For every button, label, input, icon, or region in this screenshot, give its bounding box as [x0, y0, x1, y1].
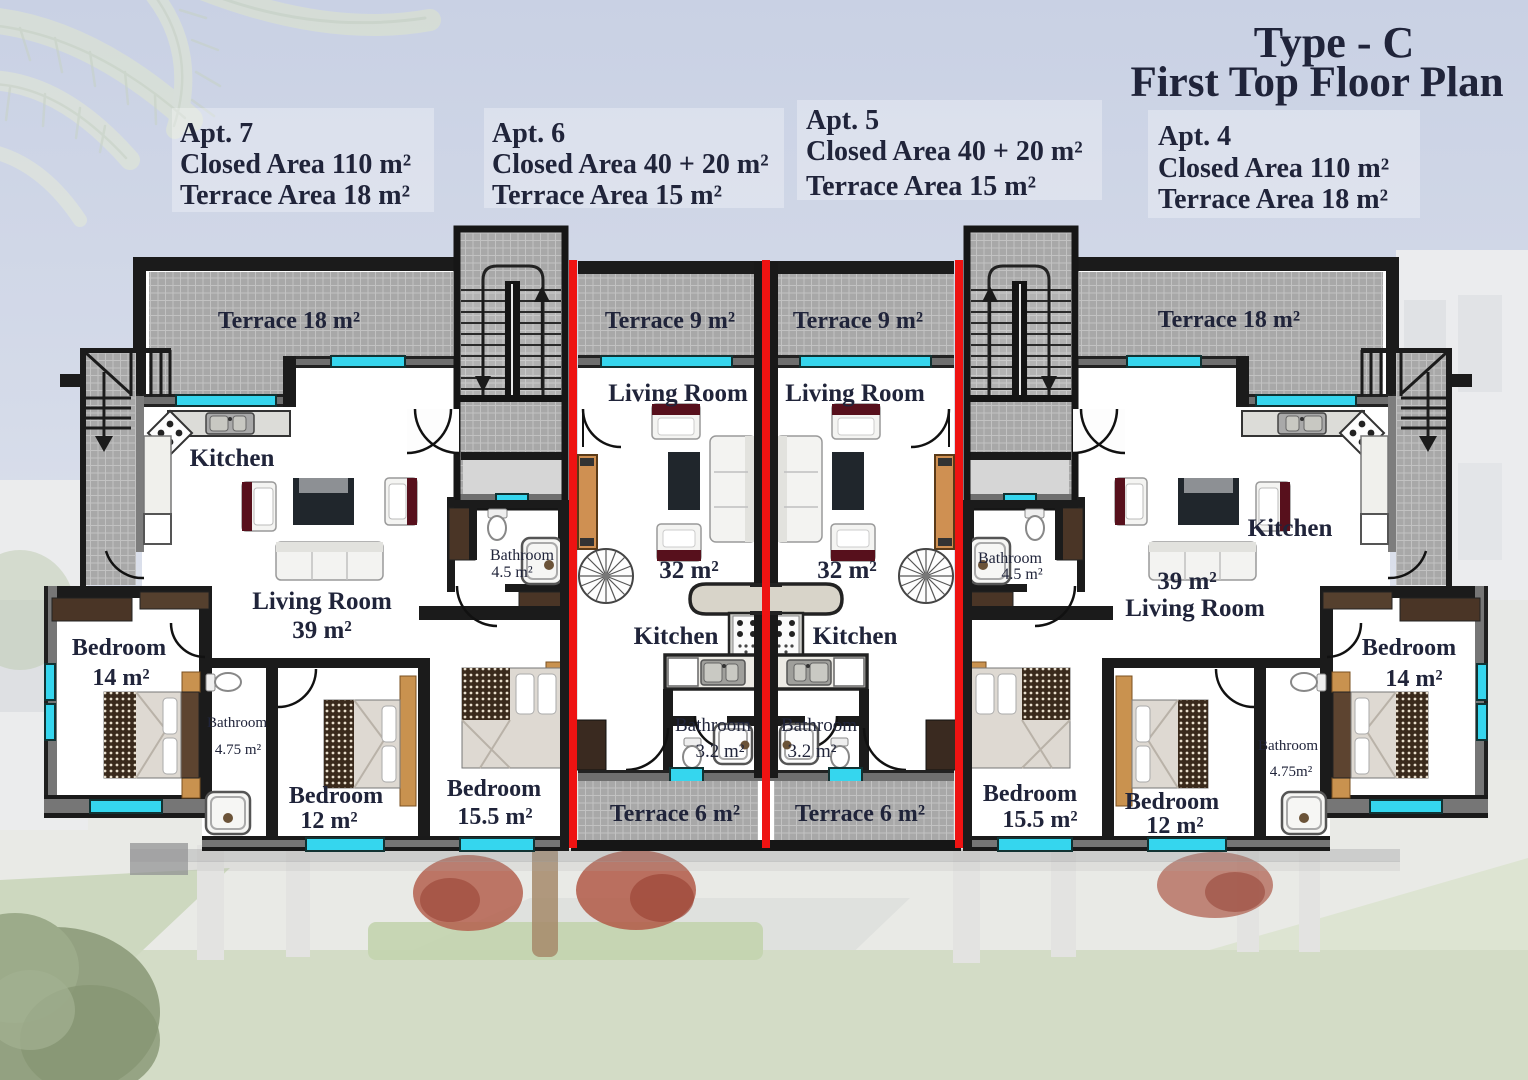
svg-text:Bathroom: Bathroom — [675, 715, 751, 736]
svg-text:Kitchen: Kitchen — [190, 445, 275, 472]
svg-text:Living Room: Living Room — [1125, 595, 1265, 622]
svg-text:Terrace Area 15 m²: Terrace Area 15 m² — [492, 180, 722, 211]
svg-text:12 m²: 12 m² — [300, 808, 357, 834]
svg-text:Kitchen: Kitchen — [1248, 515, 1333, 542]
svg-text:Bathroom: Bathroom — [207, 715, 267, 731]
svg-text:14 m²: 14 m² — [1385, 666, 1442, 692]
svg-text:14 m²: 14 m² — [92, 665, 149, 691]
svg-text:Terrace 6 m²: Terrace 6 m² — [610, 801, 740, 827]
svg-text:Bedroom: Bedroom — [1362, 635, 1456, 661]
svg-text:Terrace 9 m²: Terrace 9 m² — [605, 308, 735, 334]
svg-text:Closed Area 110 m²: Closed Area 110 m² — [1158, 153, 1389, 184]
svg-text:39 m²: 39 m² — [292, 617, 352, 644]
svg-text:15.5 m²: 15.5 m² — [1002, 807, 1077, 833]
svg-text:Terrace Area 15 m²: Terrace Area 15 m² — [806, 171, 1036, 202]
svg-text:4.5 m²: 4.5 m² — [491, 564, 532, 581]
svg-text:Terrace 6 m²: Terrace 6 m² — [795, 801, 925, 827]
svg-text:Bedroom: Bedroom — [983, 781, 1077, 807]
svg-text:Terrace Area 18 m²: Terrace Area 18 m² — [180, 180, 410, 211]
svg-text:Bathroom: Bathroom — [490, 547, 555, 564]
svg-text:Kitchen: Kitchen — [634, 623, 719, 650]
svg-text:4.5 m²: 4.5 m² — [1001, 566, 1042, 583]
svg-text:4.75m²: 4.75m² — [1270, 764, 1313, 780]
svg-text:39 m²: 39 m² — [1157, 568, 1217, 595]
svg-text:32 m²: 32 m² — [659, 557, 719, 584]
svg-text:Bathroom: Bathroom — [978, 550, 1043, 567]
svg-text:3.2 m²: 3.2 m² — [696, 741, 745, 762]
svg-text:Kitchen: Kitchen — [813, 623, 898, 650]
svg-text:Bedroom: Bedroom — [447, 776, 541, 802]
svg-text:Closed Area 110 m²: Closed Area 110 m² — [180, 149, 411, 180]
svg-text:32 m²: 32 m² — [817, 557, 877, 584]
svg-text:12 m²: 12 m² — [1146, 813, 1203, 839]
svg-text:Apt. 6: Apt. 6 — [492, 118, 565, 149]
svg-text:Terrace 9 m²: Terrace 9 m² — [793, 308, 923, 334]
svg-text:Closed Area 40 + 20 m²: Closed Area 40 + 20 m² — [492, 149, 769, 180]
svg-text:Bedroom: Bedroom — [72, 635, 166, 661]
svg-text:Apt. 5: Apt. 5 — [806, 105, 879, 136]
svg-text:4.75 m²: 4.75 m² — [215, 742, 262, 758]
svg-text:Closed Area 40 + 20 m²: Closed Area 40 + 20 m² — [806, 136, 1083, 167]
svg-text:Living Room: Living Room — [608, 380, 748, 407]
svg-text:Apt. 7: Apt. 7 — [180, 118, 253, 149]
svg-text:Bedroom: Bedroom — [1125, 789, 1219, 815]
svg-text:Bathroom: Bathroom — [1258, 738, 1318, 754]
svg-text:Terrace 18 m²: Terrace 18 m² — [1158, 307, 1300, 333]
svg-text:Terrace Area 18 m²: Terrace Area 18 m² — [1158, 184, 1388, 215]
svg-text:Terrace 18 m²: Terrace 18 m² — [218, 308, 360, 334]
svg-text:3.2 m²: 3.2 m² — [788, 741, 837, 762]
svg-text:First Top Floor Plan: First Top Floor Plan — [1130, 59, 1503, 106]
svg-text:Bedroom: Bedroom — [289, 783, 383, 809]
svg-text:15.5 m²: 15.5 m² — [457, 804, 532, 830]
svg-text:Bathroom: Bathroom — [781, 715, 857, 736]
svg-text:Living Room: Living Room — [252, 588, 392, 615]
svg-text:Apt. 4: Apt. 4 — [1158, 121, 1231, 152]
svg-text:Living Room: Living Room — [785, 380, 925, 407]
